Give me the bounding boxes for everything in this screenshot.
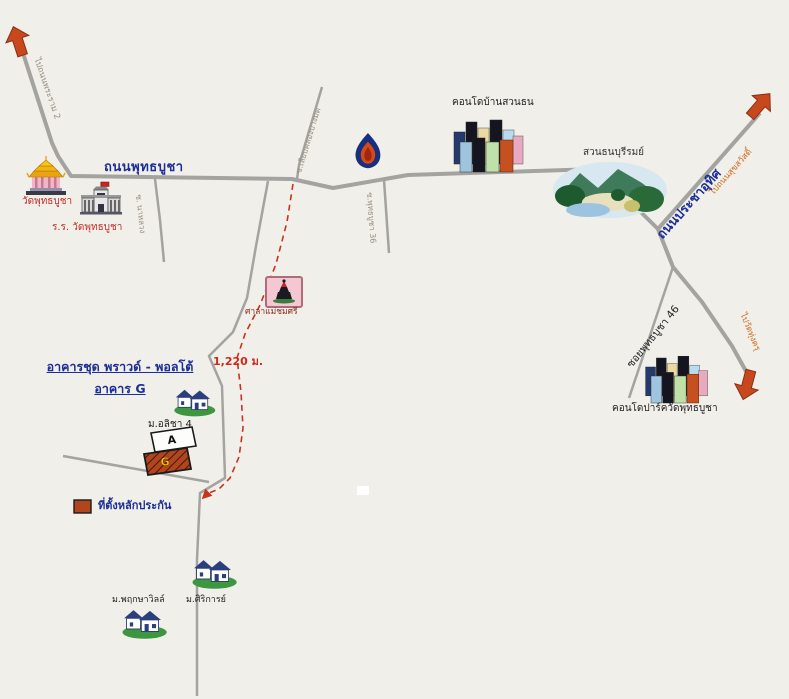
building-g: G bbox=[144, 448, 191, 475]
place-label-condo-baan-suan-thon: คอนโดบ้านสวนธน bbox=[452, 97, 534, 109]
project-title-line1: อาคารชุด พราวด์ - พอลโต้ bbox=[40, 360, 200, 374]
route-dashed-line bbox=[209, 184, 293, 493]
road-soi-stub bbox=[384, 180, 389, 253]
place-label-village-alicha: ม.อลิชา 4 bbox=[148, 419, 192, 431]
white-patch bbox=[357, 486, 369, 495]
park-thonburirom-icon bbox=[553, 162, 667, 218]
condo-baan-suan-thon-icon bbox=[454, 120, 523, 172]
place-label-school: ร.ร. วัดพุทธบูชา bbox=[52, 222, 122, 234]
village-pruksa-ville-icon bbox=[122, 610, 166, 639]
arrow-to-thungkhru-icon bbox=[732, 367, 763, 402]
road-label-phutthabucha: ถนนพุทธบูชา bbox=[104, 161, 184, 176]
condo-park-icon bbox=[646, 356, 708, 403]
legend-collateral-swatch bbox=[74, 500, 91, 513]
ptt-flame-icon bbox=[356, 133, 381, 168]
legend-collateral-label: ที่ตั้งหลักประกัน bbox=[98, 500, 171, 513]
shrine-icon bbox=[266, 277, 302, 307]
village-sirikan-icon bbox=[192, 560, 236, 589]
building-a: A bbox=[151, 427, 196, 452]
place-label-shrine: ศาลาแม่ชมศรี bbox=[245, 308, 298, 318]
building-g-label: G bbox=[160, 455, 171, 469]
place-label-village-pruksa-ville: ม.พฤกษาวิลล์ bbox=[112, 595, 165, 605]
arrow-to-rama2-icon bbox=[2, 23, 34, 59]
school-icon bbox=[80, 182, 122, 215]
place-label-park: สวนธนบุรีรมย์ bbox=[583, 147, 644, 159]
place-label-village-sirikan: ม.ศิริการย์ bbox=[186, 595, 226, 605]
project-title-line2: อาคาร G bbox=[40, 382, 200, 396]
map-canvas: A G ถนนพุทธบูชา ถนนประชาอุทิศ ซอยพุทธบูช… bbox=[0, 0, 789, 699]
place-label-temple: วัดพุทธบูชา bbox=[22, 196, 72, 208]
place-label-condo-park: คอนโดปาร์ควัดพุทธบูชา bbox=[612, 403, 718, 415]
route-distance-label: 1,220 ม. bbox=[213, 356, 263, 369]
road-soi-west bbox=[155, 179, 164, 262]
arrow-to-suksawat-icon bbox=[741, 86, 779, 124]
